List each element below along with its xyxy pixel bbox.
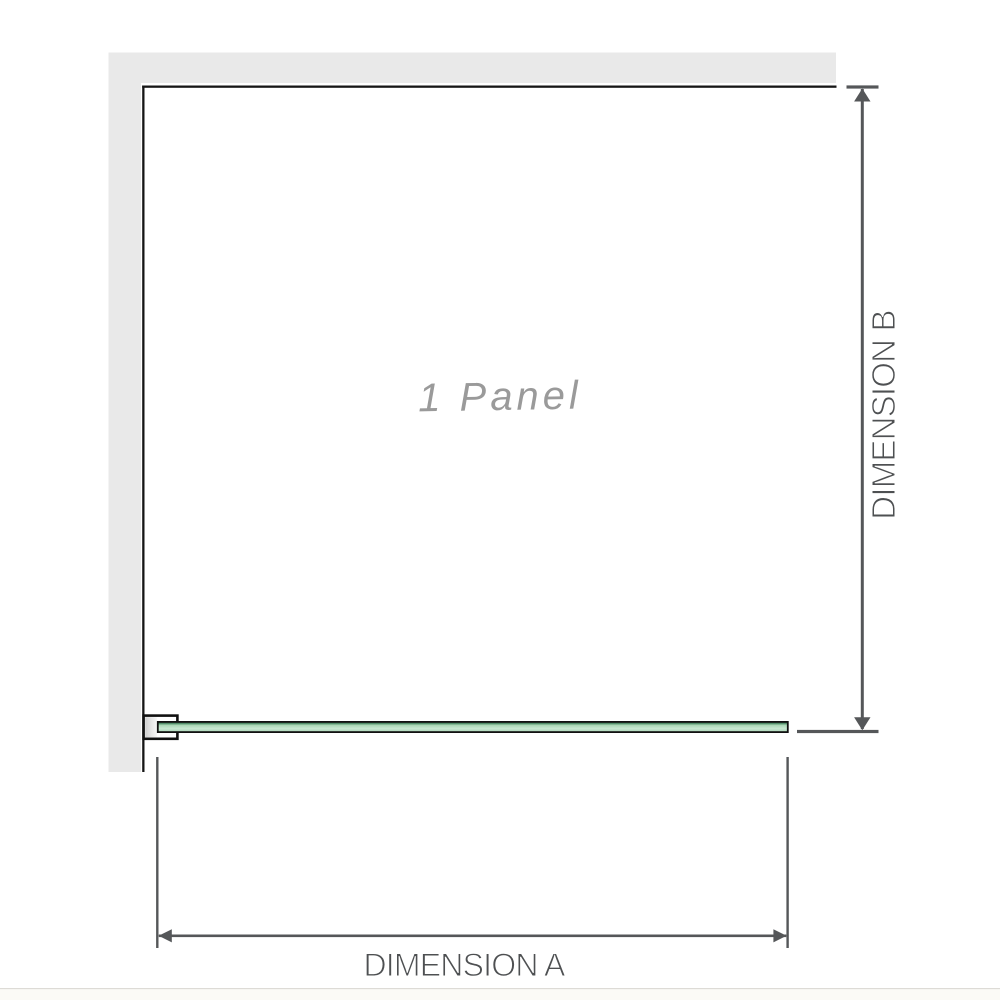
svg-text:DIMENSION A: DIMENSION A xyxy=(363,947,565,983)
svg-text:1 Panel: 1 Panel xyxy=(418,374,582,421)
svg-text:DIMENSION B: DIMENSION B xyxy=(865,310,902,519)
